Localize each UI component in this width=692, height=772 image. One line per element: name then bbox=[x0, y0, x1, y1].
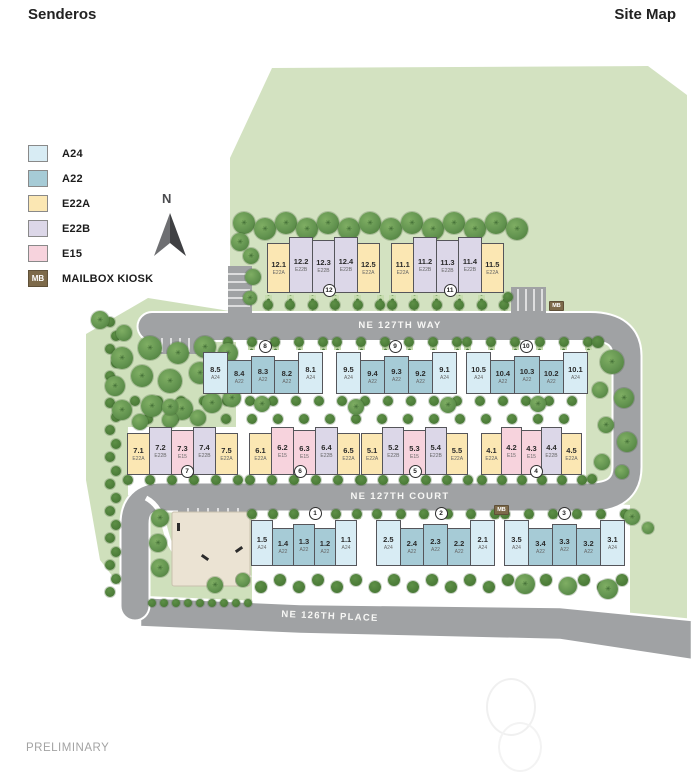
unit-plan-type: A24 bbox=[474, 375, 483, 381]
tree-icon bbox=[600, 350, 624, 374]
unit-4.1: 4.1E22A bbox=[481, 433, 502, 475]
unit-2.4: 2.4A22 bbox=[400, 528, 425, 566]
tree-icon bbox=[432, 300, 442, 310]
unit-plan-type: E15 bbox=[278, 453, 287, 459]
unit-number: 4.4 bbox=[546, 444, 556, 452]
unit-number: 6.3 bbox=[299, 445, 309, 453]
unit-number: 8.3 bbox=[258, 368, 268, 376]
unit-6.5: 6.5E22A bbox=[337, 433, 360, 475]
tree-icon bbox=[151, 559, 169, 577]
tree-icon bbox=[274, 574, 286, 586]
tree-icon bbox=[184, 599, 192, 607]
tree-icon bbox=[247, 337, 257, 347]
tree-icon bbox=[592, 382, 608, 398]
tree-icon bbox=[233, 212, 255, 234]
unit-6.1: 6.1E22A bbox=[249, 433, 272, 475]
tree-icon bbox=[353, 300, 363, 310]
unit-plan-type: E22B bbox=[419, 267, 431, 273]
unit-number: 10.3 bbox=[520, 368, 535, 376]
tree-icon bbox=[123, 475, 133, 485]
building-number-badge-8: 8 bbox=[259, 340, 272, 353]
tree-icon bbox=[167, 475, 177, 485]
tree-icon bbox=[452, 337, 462, 347]
tree-icon bbox=[314, 396, 324, 406]
unit-10.1: 10.1A24 bbox=[563, 352, 588, 394]
unit-plan-type: E22A bbox=[254, 456, 266, 462]
unit-9.1: 9.1A24 bbox=[432, 352, 457, 394]
unit-plan-type: A24 bbox=[608, 545, 617, 551]
tree-icon bbox=[615, 465, 629, 479]
unit-5.1: 5.1E22A bbox=[361, 433, 383, 475]
tree-icon bbox=[348, 399, 364, 415]
tree-icon bbox=[247, 414, 257, 424]
tree-icon bbox=[559, 337, 569, 347]
building-number-badge-12: 12 bbox=[323, 284, 336, 297]
tree-icon bbox=[255, 581, 267, 593]
unit-plan-type: E22B bbox=[441, 268, 453, 274]
tree-icon bbox=[503, 292, 513, 302]
unit-11.5: 11.5E22A bbox=[481, 243, 504, 293]
tree-icon bbox=[148, 599, 156, 607]
tree-icon bbox=[105, 506, 115, 516]
unit-number: 8.1 bbox=[305, 366, 315, 374]
tree-icon bbox=[268, 509, 278, 519]
unit-6.2: 6.2E15 bbox=[271, 427, 294, 475]
unit-2.5: 2.5A24 bbox=[376, 520, 401, 566]
building-12: 12.1E22A12.2E22B12.3E22B12.4E22B12.5E22A bbox=[268, 237, 380, 293]
tree-icon bbox=[208, 599, 216, 607]
tree-icon bbox=[578, 574, 590, 586]
unit-number: 1.5 bbox=[257, 536, 267, 544]
unit-number: 10.5 bbox=[471, 366, 486, 374]
tree-icon bbox=[559, 577, 577, 595]
tree-icon bbox=[567, 396, 577, 406]
tree-icon bbox=[190, 410, 206, 426]
tree-icon bbox=[445, 581, 457, 593]
tree-icon bbox=[221, 414, 231, 424]
unit-plan-type: A22 bbox=[547, 379, 556, 385]
unit-plan-type: A22 bbox=[279, 549, 288, 555]
street-label-ne-127th-court: NE 127TH COURT bbox=[290, 491, 510, 502]
unit-number: 11.5 bbox=[485, 261, 499, 269]
tree-icon bbox=[151, 509, 169, 527]
tree-icon bbox=[485, 212, 507, 234]
tree-icon bbox=[149, 534, 167, 552]
tree-icon bbox=[517, 475, 527, 485]
unit-8.1: 8.1A24 bbox=[298, 352, 323, 394]
tree-icon bbox=[111, 547, 121, 557]
unit-plan-type: A22 bbox=[560, 547, 569, 553]
unit-number: 12.2 bbox=[294, 258, 309, 266]
tree-icon bbox=[111, 347, 133, 369]
unit-plan-type: E15 bbox=[410, 454, 419, 460]
unit-4.2: 4.2E15 bbox=[501, 427, 522, 475]
tree-icon bbox=[245, 269, 261, 285]
unit-5.2: 5.2E22B bbox=[382, 427, 404, 475]
unit-plan-type: A24 bbox=[306, 375, 315, 381]
unit-number: 11.4 bbox=[463, 258, 477, 266]
tree-icon bbox=[403, 414, 413, 424]
tree-icon bbox=[105, 425, 115, 435]
unit-number: 8.4 bbox=[234, 370, 244, 378]
unit-number: 5.2 bbox=[388, 444, 398, 452]
unit-number: 3.4 bbox=[535, 540, 545, 548]
tree-icon bbox=[254, 396, 270, 412]
tree-icon bbox=[426, 574, 438, 586]
unit-number: 12.3 bbox=[316, 259, 331, 267]
unit-plan-type: A24 bbox=[211, 375, 220, 381]
unit-number: 1.2 bbox=[320, 540, 330, 548]
tree-icon bbox=[396, 509, 406, 519]
tree-icon bbox=[506, 218, 528, 240]
tree-icon bbox=[202, 393, 222, 413]
unit-number: 10.2 bbox=[544, 370, 559, 378]
tree-icon bbox=[407, 581, 419, 593]
tree-icon bbox=[308, 300, 318, 310]
unit-plan-type: E22A bbox=[273, 270, 285, 276]
tree-icon bbox=[105, 376, 125, 396]
unit-plan-type: A24 bbox=[344, 375, 353, 381]
unit-1.3: 1.3A22 bbox=[293, 524, 315, 566]
bench-icon bbox=[177, 523, 180, 531]
unit-10.3: 10.3A22 bbox=[514, 356, 539, 394]
unit-plan-type: E22B bbox=[317, 268, 329, 274]
tree-icon bbox=[624, 509, 640, 525]
unit-plan-type: A22 bbox=[259, 377, 268, 383]
building-number-badge-2: 2 bbox=[435, 507, 448, 520]
unit-4.5: 4.5E22A bbox=[561, 433, 582, 475]
tree-icon bbox=[440, 397, 456, 413]
tree-icon bbox=[572, 509, 582, 519]
tree-icon bbox=[105, 560, 115, 570]
unit-number: 4.2 bbox=[506, 444, 516, 452]
tree-icon bbox=[141, 395, 163, 417]
building-number-badge-10: 10 bbox=[520, 340, 533, 353]
tree-icon bbox=[172, 599, 180, 607]
unit-1.5: 1.5A24 bbox=[251, 520, 273, 566]
unit-plan-type: E22A bbox=[565, 456, 577, 462]
tree-icon bbox=[596, 509, 606, 519]
tree-icon bbox=[548, 509, 558, 519]
unit-12.2: 12.2E22B bbox=[289, 237, 312, 293]
unit-number: 5.4 bbox=[430, 444, 440, 452]
tree-icon bbox=[351, 414, 361, 424]
unit-number: 4.1 bbox=[486, 447, 496, 455]
unit-number: 5.1 bbox=[367, 447, 377, 455]
unit-plan-type: E22A bbox=[132, 456, 144, 462]
tree-icon bbox=[138, 336, 162, 360]
unit-number: 7.4 bbox=[199, 444, 209, 452]
tree-icon bbox=[160, 599, 168, 607]
tree-icon bbox=[333, 475, 343, 485]
unit-plan-type: A22 bbox=[416, 379, 425, 385]
unit-number: 12.1 bbox=[271, 261, 286, 269]
unit-plan-type: E22B bbox=[430, 453, 442, 459]
tree-icon bbox=[359, 212, 381, 234]
tree-icon bbox=[196, 599, 204, 607]
tree-icon bbox=[273, 414, 283, 424]
tree-icon bbox=[331, 509, 341, 519]
tree-icon bbox=[332, 337, 342, 347]
tree-icon bbox=[477, 475, 487, 485]
unit-plan-type: E15 bbox=[527, 454, 536, 460]
tree-icon bbox=[312, 574, 324, 586]
tree-icon bbox=[598, 417, 614, 433]
unit-plan-type: A24 bbox=[342, 545, 351, 551]
unit-4.4: 4.4E22B bbox=[541, 427, 562, 475]
tree-icon bbox=[116, 325, 132, 341]
unit-number: 2.4 bbox=[407, 540, 417, 548]
unit-plan-type: A24 bbox=[512, 545, 521, 551]
tree-icon bbox=[291, 396, 301, 406]
tree-icon bbox=[105, 479, 115, 489]
unit-number: 9.3 bbox=[391, 368, 401, 376]
tree-icon bbox=[515, 574, 535, 594]
unit-plan-type: A24 bbox=[258, 545, 267, 551]
unit-8.4: 8.4A22 bbox=[227, 360, 252, 394]
tree-icon bbox=[477, 300, 487, 310]
tree-icon bbox=[642, 522, 654, 534]
tree-icon bbox=[317, 212, 339, 234]
tree-icon bbox=[162, 399, 178, 415]
unit-plan-type: E22B bbox=[295, 267, 307, 273]
unit-number: 3.1 bbox=[607, 536, 617, 544]
unit-number: 10.1 bbox=[568, 366, 583, 374]
tree-icon bbox=[497, 475, 507, 485]
unit-2.3: 2.3A22 bbox=[423, 524, 448, 566]
unit-number: 5.3 bbox=[409, 445, 419, 453]
unit-number: 3.5 bbox=[511, 536, 521, 544]
unit-plan-type: E22B bbox=[340, 267, 352, 273]
building-8: 8.5A248.4A228.3A228.2A228.1A24 bbox=[204, 352, 323, 394]
tree-icon bbox=[388, 574, 400, 586]
tree-icon bbox=[236, 573, 250, 587]
tree-icon bbox=[502, 574, 514, 586]
tree-icon bbox=[111, 439, 121, 449]
tree-icon bbox=[592, 336, 604, 348]
unit-11.1: 11.1E22A bbox=[391, 243, 414, 293]
tree-icon bbox=[293, 581, 305, 593]
unit-9.4: 9.4A22 bbox=[360, 360, 385, 394]
unit-number: 9.2 bbox=[415, 370, 425, 378]
tree-icon bbox=[267, 475, 277, 485]
unit-plan-type: E22B bbox=[198, 453, 210, 459]
unit-number: 9.5 bbox=[343, 366, 353, 374]
tree-icon bbox=[311, 475, 321, 485]
tree-icon bbox=[533, 414, 543, 424]
tree-icon bbox=[463, 475, 473, 485]
tree-icon bbox=[401, 212, 423, 234]
unit-plan-type: A22 bbox=[455, 549, 464, 555]
tree-icon bbox=[131, 365, 153, 387]
building-2: 2.5A242.4A222.3A222.2A222.1A24 bbox=[377, 520, 495, 566]
unit-5.5: 5.5E22A bbox=[446, 433, 468, 475]
tree-icon bbox=[594, 454, 610, 470]
tree-icon bbox=[498, 396, 508, 406]
unit-plan-type: A22 bbox=[407, 549, 416, 555]
unit-6.4: 6.4E22B bbox=[315, 427, 338, 475]
building-number-badge-1: 1 bbox=[309, 507, 322, 520]
tree-icon bbox=[559, 414, 569, 424]
unit-plan-type: E15 bbox=[300, 454, 309, 460]
tree-icon bbox=[243, 248, 259, 264]
unit-plan-type: E22B bbox=[464, 267, 476, 273]
tree-icon bbox=[245, 475, 255, 485]
tree-icon bbox=[158, 369, 182, 393]
tree-icon bbox=[375, 300, 385, 310]
unit-3.3: 3.3A22 bbox=[552, 524, 577, 566]
tree-icon bbox=[377, 414, 387, 424]
unit-plan-type: E15 bbox=[507, 453, 516, 459]
unit-number: 8.2 bbox=[282, 370, 292, 378]
tree-icon bbox=[220, 599, 228, 607]
unit-8.2: 8.2A22 bbox=[274, 360, 299, 394]
unit-number: 6.2 bbox=[277, 444, 287, 452]
unit-plan-type: E22A bbox=[486, 270, 498, 276]
tree-icon bbox=[289, 509, 299, 519]
unit-number: 11.1 bbox=[396, 261, 410, 269]
unit-number: 1.1 bbox=[341, 536, 351, 544]
tree-icon bbox=[211, 475, 221, 485]
building-number-badge-9: 9 bbox=[389, 340, 402, 353]
tree-icon bbox=[530, 396, 546, 412]
tree-icon bbox=[356, 337, 366, 347]
unit-number: 3.3 bbox=[559, 538, 569, 546]
unit-10.5: 10.5A24 bbox=[466, 352, 491, 394]
unit-1.4: 1.4A22 bbox=[272, 528, 294, 566]
unit-12.5: 12.5E22A bbox=[357, 243, 380, 293]
street-label-ne-127th-way: NE 127TH WAY bbox=[290, 320, 510, 331]
unit-2.1: 2.1A24 bbox=[470, 520, 495, 566]
unit-3.2: 3.2A22 bbox=[576, 528, 601, 566]
unit-number: 12.5 bbox=[361, 261, 376, 269]
tree-icon bbox=[577, 475, 587, 485]
unit-12.4: 12.4E22B bbox=[334, 237, 357, 293]
tree-icon bbox=[299, 414, 309, 424]
tree-icon bbox=[111, 466, 121, 476]
tree-icon bbox=[383, 396, 393, 406]
tree-icon bbox=[325, 414, 335, 424]
unit-number: 1.4 bbox=[278, 540, 288, 548]
unit-5.4: 5.4E22B bbox=[425, 427, 447, 475]
unit-plan-type: A22 bbox=[392, 377, 401, 383]
unit-plan-type: E22B bbox=[320, 453, 332, 459]
tree-icon bbox=[524, 509, 534, 519]
unit-12.1: 12.1E22A bbox=[267, 243, 290, 293]
unit-number: 6.1 bbox=[255, 447, 265, 455]
unit-3.5: 3.5A24 bbox=[504, 520, 529, 566]
unit-number: 6.5 bbox=[343, 447, 353, 455]
unit-number: 2.3 bbox=[430, 538, 440, 546]
unit-plan-type: E22B bbox=[545, 453, 557, 459]
unit-plan-type: E15 bbox=[178, 454, 187, 460]
unit-number: 12.4 bbox=[339, 258, 354, 266]
tree-icon bbox=[105, 533, 115, 543]
tree-icon bbox=[247, 509, 257, 519]
tree-icon bbox=[406, 396, 416, 406]
north-arrow-icon bbox=[154, 213, 186, 256]
tree-icon bbox=[105, 452, 115, 462]
unit-7.4: 7.4E22B bbox=[193, 427, 216, 475]
unit-plan-type: E22A bbox=[220, 456, 232, 462]
tree-icon bbox=[352, 509, 362, 519]
unit-10.4: 10.4A22 bbox=[490, 360, 515, 394]
tree-icon bbox=[617, 432, 637, 452]
building-10: 10.5A2410.4A2210.3A2210.2A2210.1A24 bbox=[467, 352, 588, 394]
unit-9.5: 9.5A24 bbox=[336, 352, 361, 394]
tree-icon bbox=[443, 212, 465, 234]
unit-number: 7.5 bbox=[221, 447, 231, 455]
unit-3.1: 3.1A24 bbox=[600, 520, 625, 566]
unit-number: 7.3 bbox=[177, 445, 187, 453]
tree-icon bbox=[507, 414, 517, 424]
building-number-badge-7: 7 bbox=[181, 465, 194, 478]
tree-icon bbox=[112, 400, 132, 420]
unit-plan-type: E22B bbox=[154, 453, 166, 459]
unit-plan-type: E22A bbox=[485, 456, 497, 462]
unit-8.3: 8.3A22 bbox=[251, 356, 276, 394]
tree-icon bbox=[111, 574, 121, 584]
building-number-badge-11: 11 bbox=[444, 284, 457, 297]
unit-number: 7.2 bbox=[155, 444, 165, 452]
building-9: 9.5A249.4A229.3A229.2A229.1A24 bbox=[337, 352, 457, 394]
unit-plan-type: A24 bbox=[384, 545, 393, 551]
unit-plan-type: A24 bbox=[571, 375, 580, 381]
unit-number: 8.5 bbox=[210, 366, 220, 374]
tree-icon bbox=[387, 300, 397, 310]
unit-10.2: 10.2A22 bbox=[539, 360, 564, 394]
unit-plan-type: A22 bbox=[300, 547, 309, 553]
tree-icon bbox=[429, 414, 439, 424]
unit-plan-type: A22 bbox=[282, 379, 291, 385]
unit-number: 5.5 bbox=[452, 447, 462, 455]
unit-number: 9.4 bbox=[367, 370, 377, 378]
unit-number: 2.2 bbox=[454, 540, 464, 548]
unit-plan-type: A22 bbox=[368, 379, 377, 385]
tree-icon bbox=[145, 475, 155, 485]
unit-plan-type: E22B bbox=[387, 453, 399, 459]
unit-7.1: 7.1E22A bbox=[127, 433, 150, 475]
unit-number: 1.3 bbox=[299, 538, 309, 546]
tree-icon bbox=[357, 475, 367, 485]
unit-number: 10.4 bbox=[496, 370, 511, 378]
tree-icon bbox=[429, 396, 439, 406]
unit-plan-type: E22A bbox=[342, 456, 354, 462]
tree-icon bbox=[232, 599, 240, 607]
tree-icon bbox=[372, 509, 382, 519]
tree-icon bbox=[587, 474, 597, 484]
mailbox-kiosk-marker-court: MB bbox=[494, 505, 509, 515]
tree-icon bbox=[421, 475, 431, 485]
unit-plan-type: E22A bbox=[366, 456, 378, 462]
tree-icon bbox=[404, 337, 414, 347]
unit-7.5: 7.5E22A bbox=[215, 433, 238, 475]
tree-icon bbox=[614, 388, 634, 408]
building-3: 3.5A243.4A223.3A223.2A223.1A24 bbox=[505, 520, 625, 566]
tree-icon bbox=[455, 414, 465, 424]
tree-icon bbox=[481, 414, 491, 424]
unit-plan-type: A24 bbox=[440, 375, 449, 381]
building-number-badge-3: 3 bbox=[558, 507, 571, 520]
unit-9.3: 9.3A22 bbox=[384, 356, 409, 394]
unit-number: 4.5 bbox=[566, 447, 576, 455]
unit-1.1: 1.1A24 bbox=[335, 520, 357, 566]
unit-plan-type: A22 bbox=[584, 549, 593, 555]
tree-icon bbox=[111, 520, 121, 530]
unit-plan-type: A24 bbox=[478, 545, 487, 551]
unit-plan-type: A22 bbox=[321, 549, 330, 555]
tree-icon bbox=[275, 212, 297, 234]
